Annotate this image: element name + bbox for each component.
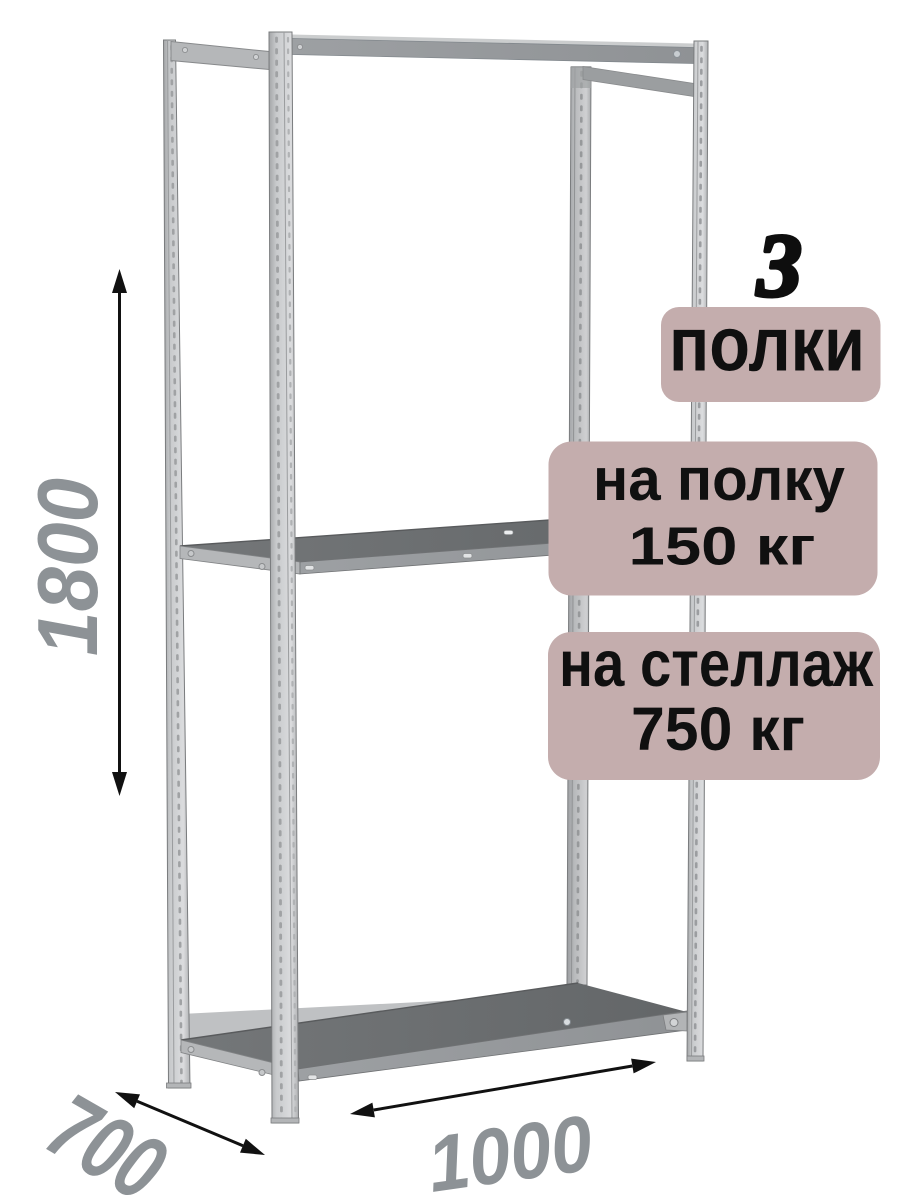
svg-text:1800: 1800: [21, 478, 116, 656]
svg-text:150 кг: 150 кг: [629, 517, 816, 577]
svg-text:на стеллаж: на стеллаж: [559, 627, 874, 700]
svg-text:750 кг: 750 кг: [631, 695, 805, 763]
svg-text:на полку: на полку: [593, 446, 846, 513]
svg-text:полки: полки: [669, 302, 865, 388]
